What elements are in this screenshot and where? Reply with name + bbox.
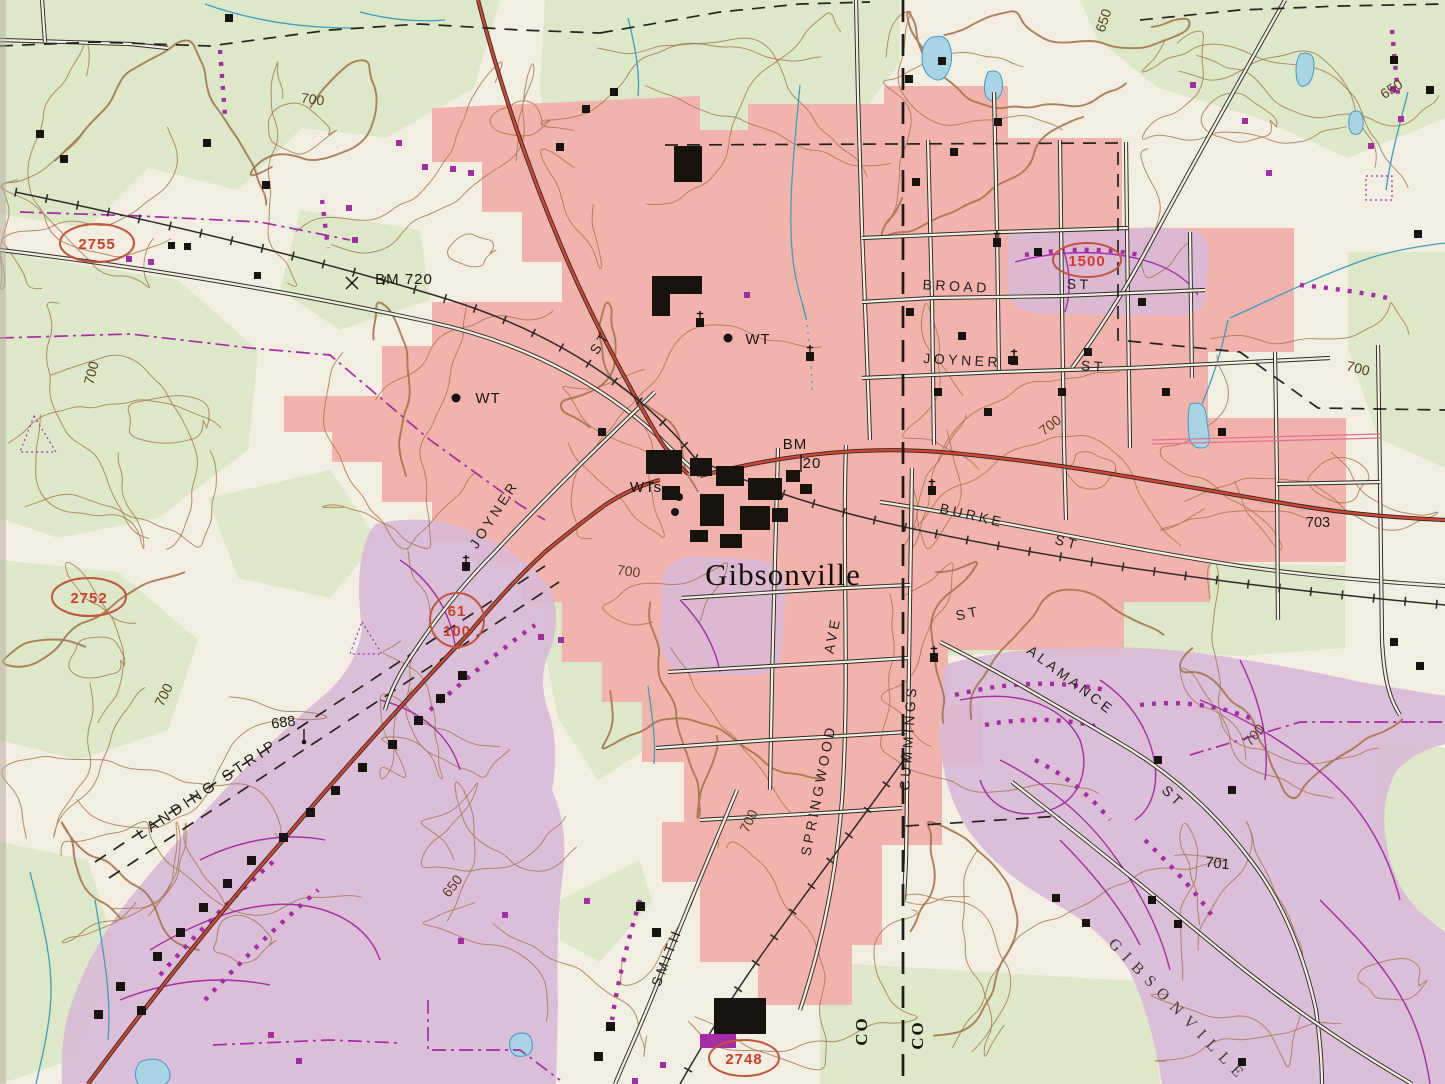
spot-elevation-703: 703 <box>1306 515 1330 531</box>
church-icon <box>1010 349 1018 365</box>
scan-edge <box>0 0 6 1084</box>
topo-map: Gibsonville BROAD ST JOYNER ST BURKE ST … <box>0 0 1445 1084</box>
church-icon <box>696 311 704 327</box>
contour-label-700: 700 <box>300 90 326 109</box>
water-tanks-label: WTs <box>630 479 662 496</box>
water-tank-label: WT <box>745 331 770 348</box>
church-icon <box>806 345 814 361</box>
map-canvas: Gibsonville BROAD ST JOYNER ST BURKE ST … <box>0 0 1445 1084</box>
water-tank-icon <box>724 334 733 343</box>
spot-elevation-688: 688 <box>270 713 296 732</box>
benchmark-20-label: 20 <box>803 455 822 472</box>
county-label-left: CO <box>852 1016 871 1046</box>
water-tank-icon <box>671 508 679 516</box>
route-shield-61-label: 61 <box>448 603 467 620</box>
church-icon <box>930 646 938 662</box>
church-icon <box>928 479 936 495</box>
route-shield-1500-label: 1500 <box>1068 253 1105 270</box>
water-tank-icon <box>452 394 461 403</box>
water-tank-icon <box>675 493 683 501</box>
route-shield-2748-label: 2748 <box>725 1051 762 1068</box>
church-icon <box>462 555 470 571</box>
county-label-right: CO <box>908 1020 927 1050</box>
street-suffix-broad: ST <box>1066 276 1091 293</box>
benchmark-720-label: BM 720 <box>375 271 433 288</box>
benchmark-bm-label: BM <box>783 436 808 453</box>
route-shield-2752-label: 2752 <box>70 590 107 607</box>
church-icon <box>993 231 1001 247</box>
route-shield-2755-label: 2755 <box>78 236 115 253</box>
street-suffix-joyner-east: ST <box>1080 357 1106 375</box>
town-name-label: Gibsonville <box>705 557 861 592</box>
water-tank-label: WT <box>475 390 500 407</box>
spot-elevation-701: 701 <box>1205 855 1231 873</box>
contour-label-700: 700 <box>616 562 642 581</box>
route-shield-100-label: 100 <box>443 623 471 640</box>
